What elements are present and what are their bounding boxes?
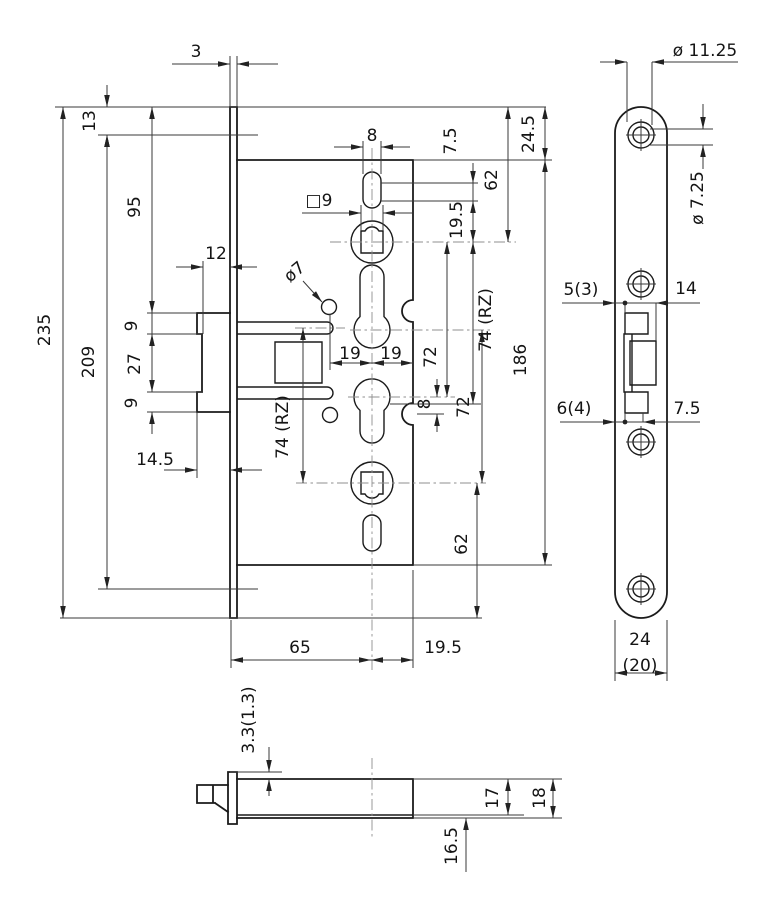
dimension-labels: 3 13 95 235 209 9 27 9 12 14.5 8 □9 ø7 1… xyxy=(35,41,737,865)
dim-entf-top: 62 xyxy=(482,169,502,191)
faceplate-front-view xyxy=(615,107,667,618)
screw-hole-3 xyxy=(626,426,656,458)
centerlines xyxy=(295,148,516,837)
latch-bolt-side xyxy=(197,313,230,412)
dim-backset-65: 65 xyxy=(289,638,311,658)
bottom-view xyxy=(197,772,413,824)
dim-cutout-14: 14 xyxy=(675,279,697,299)
latch-bottom xyxy=(197,785,228,812)
dim-plate-width-24: 24 xyxy=(629,630,651,650)
faceplate-bar-bottom xyxy=(228,772,237,824)
dim-cyl-offset-right: 19 xyxy=(380,344,402,364)
dim-oval-7-5: 7.5 xyxy=(441,127,461,154)
dim-cyl-offset-left: 19 xyxy=(339,344,361,364)
dim-screw-spacing: 209 xyxy=(79,346,99,378)
dim-dot-lower xyxy=(623,420,628,425)
dim-depth-17: 17 xyxy=(483,787,503,809)
dim-latch-seg-bot: 9 xyxy=(122,398,142,409)
dim-faceplate-thickness: 3 xyxy=(191,42,202,62)
pin-hole-upper xyxy=(322,300,337,315)
dim-rz-offset-8: 8 xyxy=(415,399,435,410)
dim-lead-95: 95 xyxy=(125,196,145,218)
dim-oval-19-5: 19.5 xyxy=(447,201,467,239)
dim-follower-square: □9 xyxy=(306,191,333,211)
dim-screw-head-dia: ø 11.25 xyxy=(673,41,737,61)
dim-entf-bottom: 62 xyxy=(452,533,472,555)
case-rect-opening xyxy=(275,342,322,383)
dim-top-to-screw: 13 xyxy=(80,110,100,132)
faceplate-edge xyxy=(230,107,237,618)
dim-case-offset-24-5: 24.5 xyxy=(519,115,539,153)
dim-case-length: 186 xyxy=(511,344,531,376)
screw-hole-4 xyxy=(626,573,656,605)
dim-slot-width-8: 8 xyxy=(367,126,378,146)
dim-screw-hole-dia: ø 7.25 xyxy=(688,171,708,225)
dim-cutout-5-3: 5(3) xyxy=(564,280,599,300)
dim-plate-length: 235 xyxy=(35,314,55,346)
dim-cutout-6-4: 6(4) xyxy=(557,399,592,419)
pin-hole-lower xyxy=(323,408,338,423)
drawing-canvas: 3 13 95 235 209 9 27 9 12 14.5 8 □9 ø7 1… xyxy=(0,0,769,901)
dim-latch-seg-mid: 27 xyxy=(125,353,145,375)
dim-rz-left: 74 (RZ) xyxy=(273,395,293,459)
dim-cutout-7-5: 7.5 xyxy=(673,399,700,419)
dim-lid-3-3: 3.3(1.3) xyxy=(239,686,259,753)
lock-technical-drawing: 3 13 95 235 209 9 27 9 12 14.5 8 □9 ø7 1… xyxy=(0,0,769,901)
dim-case-offset-19-5: 19.5 xyxy=(424,638,462,658)
dim-depth-18: 18 xyxy=(530,787,550,809)
faceplate-outline xyxy=(615,107,667,618)
dim-latch-seg-top: 9 xyxy=(122,321,142,332)
dim-pin-dia: ø7 xyxy=(280,258,309,287)
dim-step-12: 12 xyxy=(205,244,227,264)
dim-depth-16-5: 16.5 xyxy=(442,827,462,865)
dim-plate-width-20: (20) xyxy=(623,656,658,676)
dim-latch-projection: 14.5 xyxy=(136,450,174,470)
dim-72-upper: 72 xyxy=(421,346,441,368)
screw-hole-2 xyxy=(626,268,656,300)
dim-dot-upper xyxy=(623,301,628,306)
case-body-bottom xyxy=(237,779,413,818)
dim-72-lower: 72 xyxy=(454,396,474,418)
latch-cutout-front xyxy=(624,313,656,413)
dim-rz-right: 74 (RZ) xyxy=(476,288,496,352)
